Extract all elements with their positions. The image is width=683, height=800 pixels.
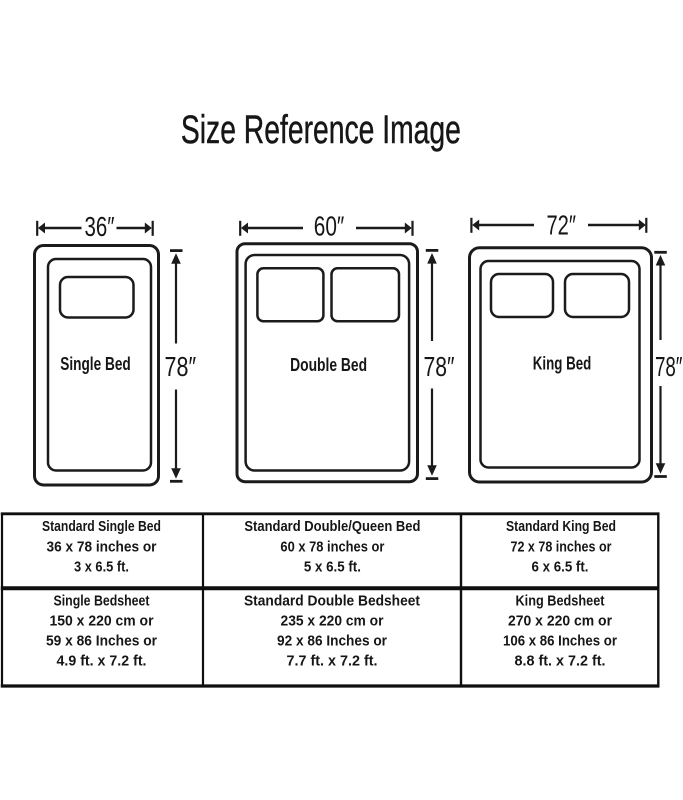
svg-text:59 x 86 Inches or: 59 x 86 Inches or: [46, 634, 157, 650]
svg-text:Standard King Bed: Standard King Bed: [506, 519, 616, 535]
svg-text:5 x 6.5 ft.: 5 x 6.5 ft.: [304, 560, 361, 576]
svg-text:Double Bed: Double Bed: [290, 355, 367, 375]
svg-text:4.9 ft. x 7.2 ft.: 4.9 ft. x 7.2 ft.: [57, 654, 147, 670]
svg-text:150 x 220 cm or: 150 x 220 cm or: [50, 614, 154, 630]
svg-text:Standard Double Bedsheet: Standard Double Bedsheet: [244, 594, 420, 610]
svg-text:King Bedsheet: King Bedsheet: [516, 594, 605, 610]
svg-text:60″: 60″: [314, 211, 345, 242]
svg-text:Size Reference Image: Size Reference Image: [181, 108, 461, 152]
svg-text:92 x 86 Inches or: 92 x 86 Inches or: [277, 634, 387, 650]
svg-text:78″: 78″: [165, 351, 197, 382]
svg-text:78″: 78″: [655, 351, 683, 382]
svg-text:Standard Double/Queen Bed: Standard Double/Queen Bed: [244, 519, 420, 535]
svg-text:8.8 ft. x 7.2 ft.: 8.8 ft. x 7.2 ft.: [515, 654, 606, 670]
svg-text:Single Bedsheet: Single Bedsheet: [54, 594, 150, 610]
svg-text:Standard Single Bed: Standard Single Bed: [42, 519, 161, 535]
svg-text:King Bed: King Bed: [533, 354, 592, 374]
svg-text:60 x 78 inches or: 60 x 78 inches or: [280, 540, 384, 556]
svg-text:6 x 6.5 ft.: 6 x 6.5 ft.: [532, 560, 589, 576]
svg-text:72 x 78 inches or: 72 x 78 inches or: [511, 540, 612, 556]
svg-text:78″: 78″: [424, 351, 455, 382]
svg-text:235 x 220 cm or: 235 x 220 cm or: [281, 614, 384, 630]
svg-text:3 x 6.5 ft.: 3 x 6.5 ft.: [74, 560, 129, 576]
svg-text:72″: 72″: [546, 210, 576, 241]
svg-text:36 x 78 inches or: 36 x 78 inches or: [47, 540, 157, 556]
svg-text:Single Bed: Single Bed: [60, 354, 131, 374]
svg-text:7.7 ft. x 7.2 ft.: 7.7 ft. x 7.2 ft.: [287, 654, 378, 670]
svg-text:270 x 220 cm or: 270 x 220 cm or: [508, 614, 612, 630]
svg-text:106 x 86 Inches or: 106 x 86 Inches or: [503, 634, 617, 650]
svg-text:36″: 36″: [85, 211, 115, 242]
